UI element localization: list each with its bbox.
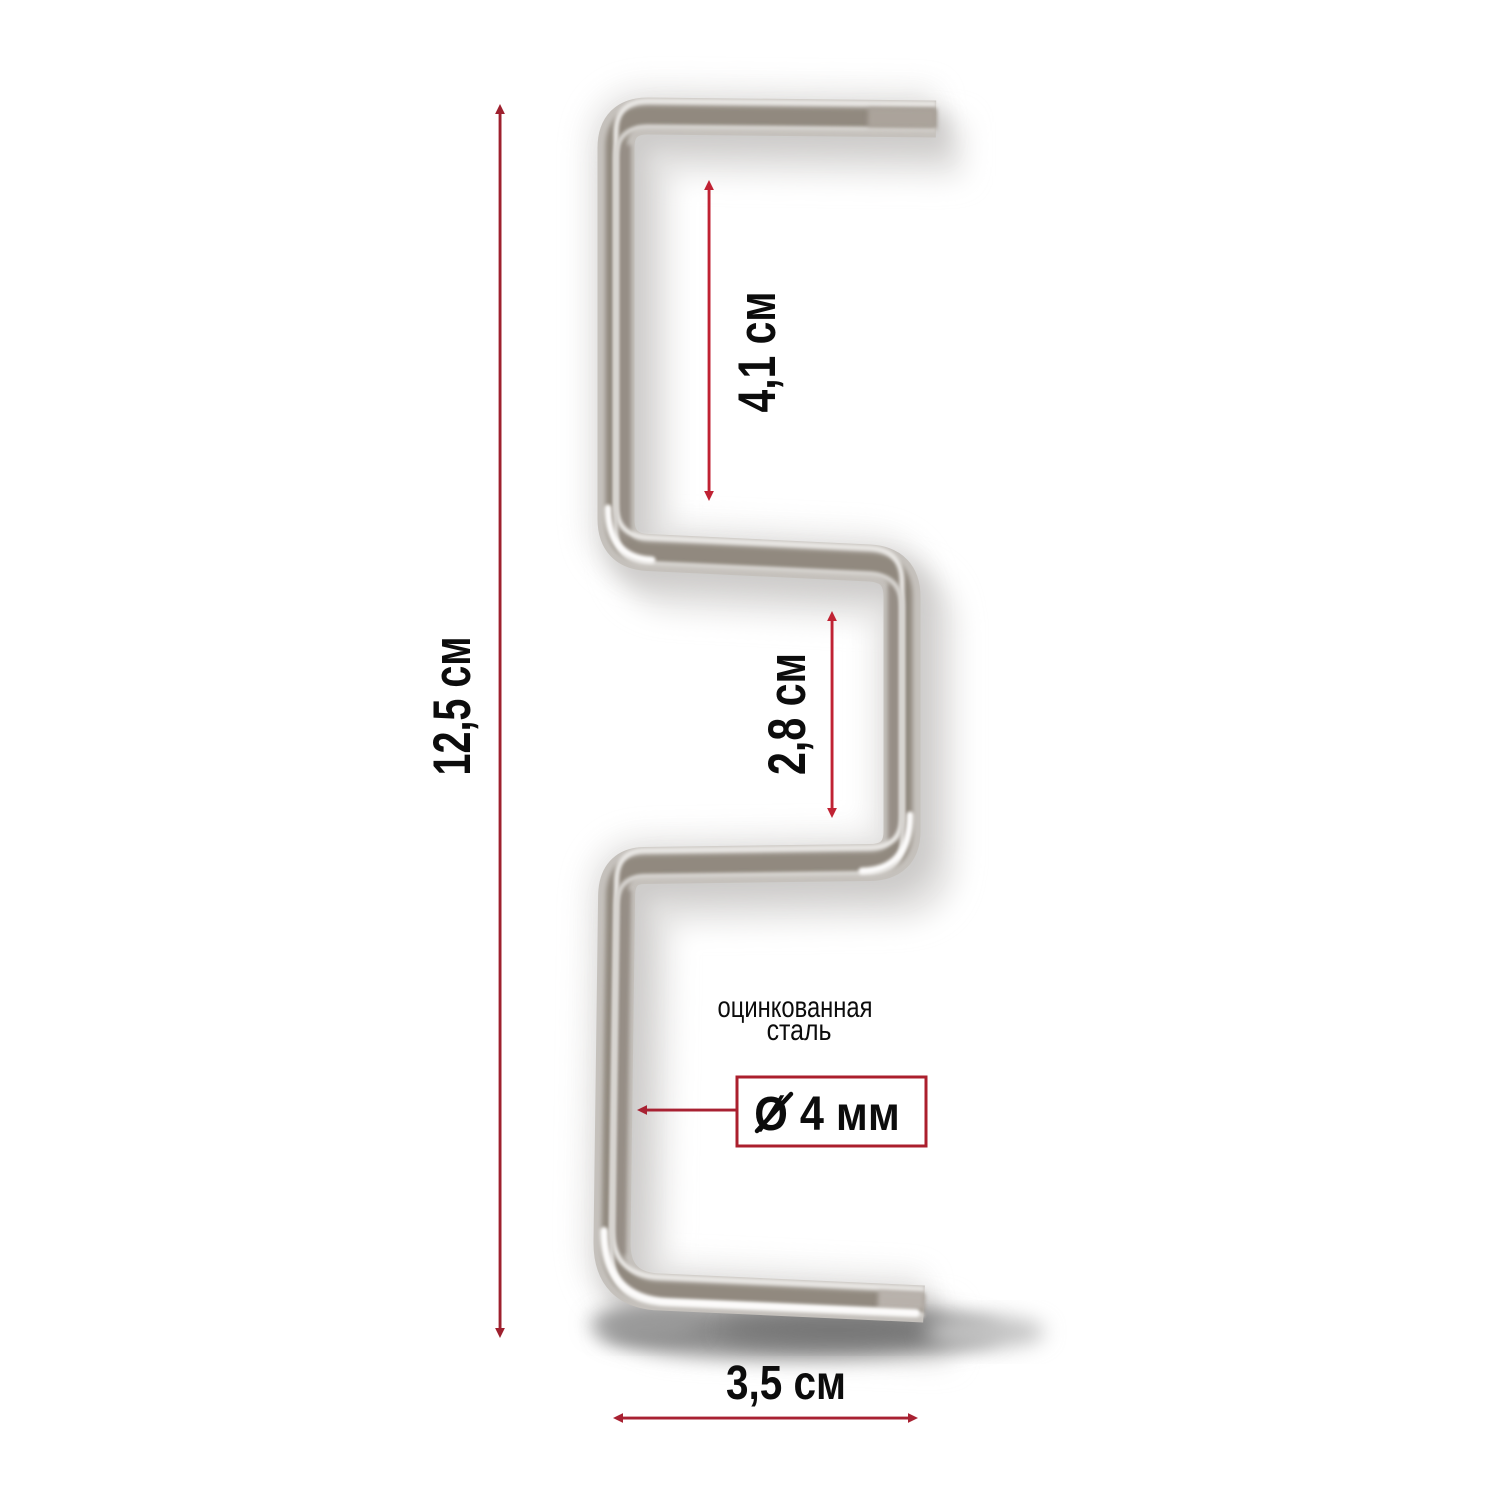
svg-text:12,5 см: 12,5 см: [422, 637, 481, 776]
svg-text:2,8 см: 2,8 см: [758, 653, 817, 775]
svg-text:4,1 см: 4,1 см: [728, 292, 787, 413]
svg-text:Ø 4 мм: Ø 4 мм: [754, 1087, 900, 1141]
svg-text:3,5 см: 3,5 см: [726, 1357, 846, 1410]
svg-text:сталь: сталь: [767, 1013, 832, 1047]
